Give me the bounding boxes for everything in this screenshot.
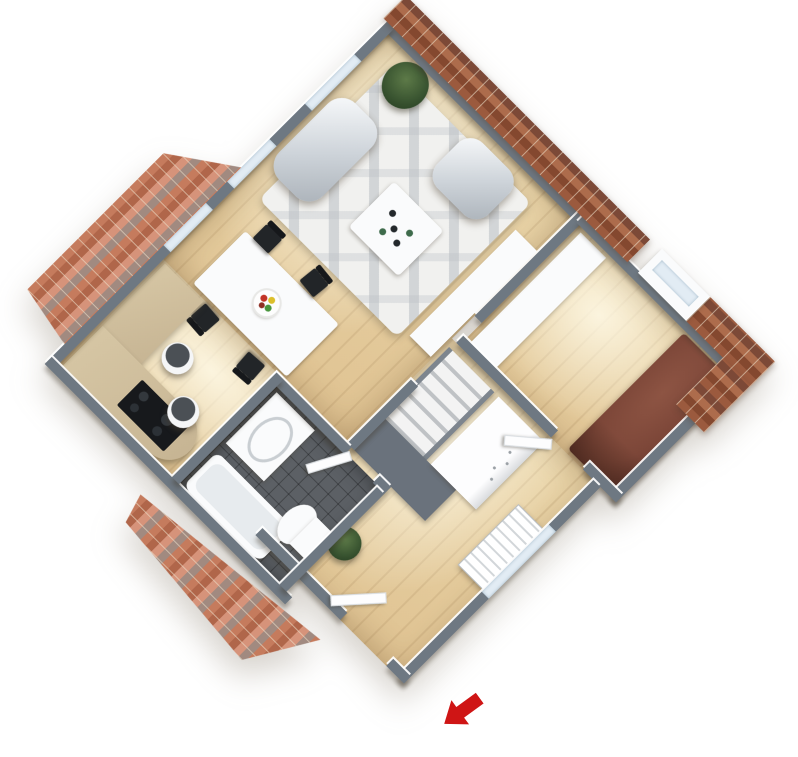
cup [389, 224, 399, 234]
closet-handle [492, 466, 496, 470]
cup [392, 238, 402, 248]
burner [137, 389, 151, 403]
burner [128, 401, 141, 414]
closet-handle [508, 450, 512, 454]
floor-plan-scene [0, 0, 798, 757]
burner [150, 424, 164, 438]
apartment-plan [0, 0, 796, 757]
closet-handle [505, 462, 509, 466]
cup [388, 208, 398, 218]
cup [405, 228, 415, 238]
closet-handle [489, 477, 493, 481]
cup [378, 227, 388, 237]
